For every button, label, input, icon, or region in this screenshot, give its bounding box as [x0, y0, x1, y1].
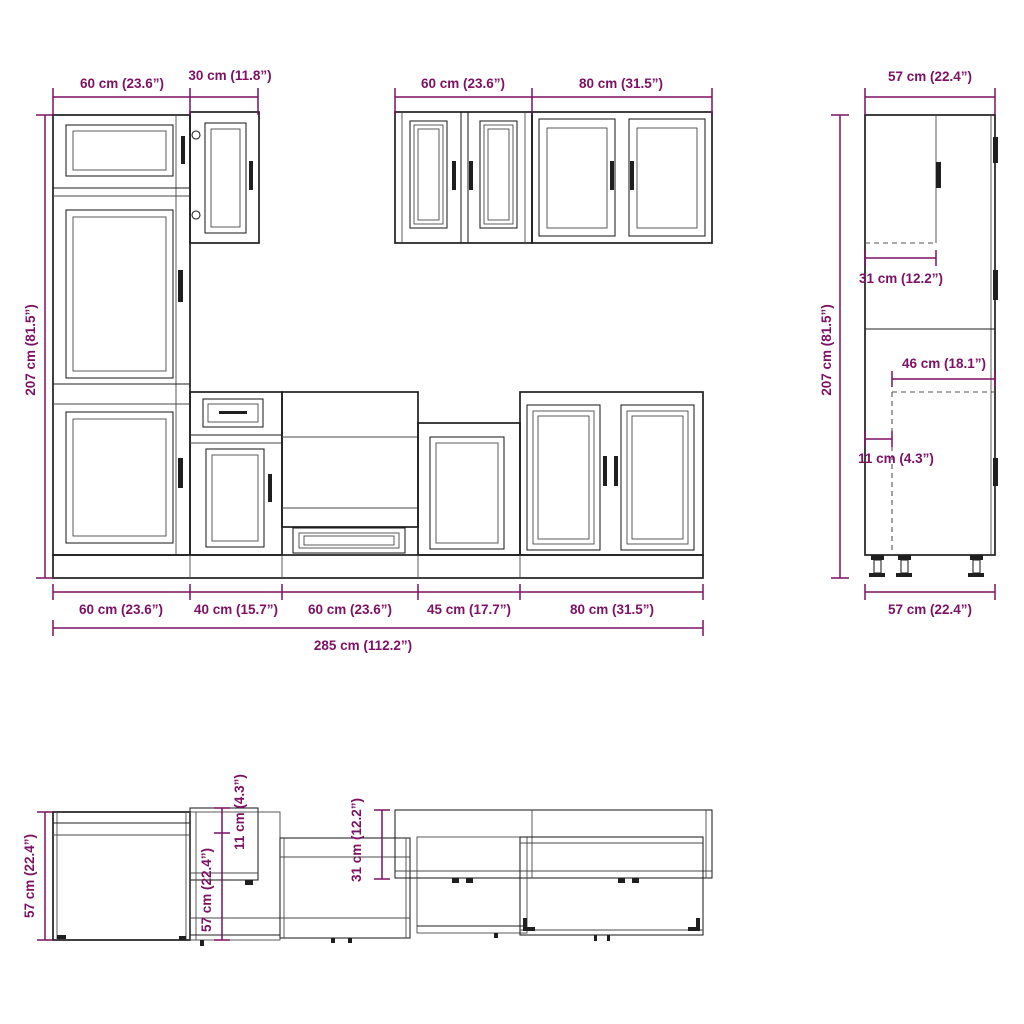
dim-side-depth-top: 57 cm (22.4”)	[888, 69, 972, 84]
base60-bottom-drawer	[293, 528, 405, 553]
tall-cabinet	[53, 115, 190, 555]
dim-wall-offset: 11 cm (4.3”)	[858, 451, 934, 466]
dim-plan-depth-left: 57 cm (22.4”)	[22, 834, 37, 918]
dim-line-total-width	[53, 620, 703, 636]
dim-carcass-depth: 46 cm (18.1”)	[902, 356, 986, 371]
tall-top-door-handle	[181, 136, 185, 164]
wall60-left-handle	[452, 161, 456, 190]
hinge-bottom	[192, 211, 200, 219]
dim-upper-cabinet-width: 30 cm (11.8”)	[188, 68, 271, 83]
side-handle-middle	[993, 270, 998, 300]
base45-door	[430, 437, 504, 549]
dim-height-side: 207 cm (81.5”)	[819, 304, 834, 396]
dim-line-side-depth-bottom	[865, 584, 995, 600]
dim-total-width: 285 cm (112.2”)	[314, 638, 412, 653]
wall60-right-door-panel	[480, 121, 517, 228]
tall-bottom-door	[66, 412, 173, 543]
front-elevation	[53, 112, 712, 578]
side-view	[865, 115, 998, 577]
wall60-right-handle	[469, 161, 473, 190]
dim-line-side-depth-top	[865, 88, 995, 115]
base-cabinet-80	[520, 392, 703, 555]
dim-plan-wall-depth: 31 cm (12.2”)	[349, 798, 364, 882]
plan-base-45	[417, 837, 527, 938]
plan-wall-60-80	[395, 810, 712, 883]
dim-wall-60: 60 cm (23.6”)	[421, 76, 505, 91]
dim-base-width-3: 60 cm (23.6”)	[308, 602, 392, 617]
dim-side-depth-bottom: 57 cm (22.4”)	[888, 602, 972, 617]
dim-line-height-left	[36, 115, 54, 578]
wall60-left-door-panel	[410, 121, 447, 228]
dim-plan-cabinet-depth: 57 cm (22.4”)	[199, 848, 214, 932]
kitchen-cabinet-dimension-diagram: 60 cm (23.6”) 30 cm (11.8”) 60 cm (23.6”…	[0, 0, 1024, 1024]
dim-base-width-5: 80 cm (31.5”)	[570, 602, 654, 617]
dim-height-left: 207 cm (81.5”)	[23, 304, 38, 396]
dim-line-wall-offset	[865, 431, 892, 447]
dim-base-width-2: 40 cm (15.7”)	[194, 602, 278, 617]
dimensions: 60 cm (23.6”) 30 cm (11.8”) 60 cm (23.6”…	[22, 68, 995, 940]
tall-top-door	[66, 125, 173, 176]
hinge-top	[192, 131, 200, 139]
base-cabinet-60-appliance	[282, 392, 418, 553]
wall80-left-handle	[610, 161, 614, 190]
base-cabinet-40	[190, 392, 282, 555]
wall-cabinet-30	[190, 112, 259, 243]
wall80-right-handle	[630, 161, 634, 190]
dim-base-width-4: 45 cm (17.7”)	[427, 602, 511, 617]
dim-line-plan-wall-depth	[374, 810, 390, 879]
wall80-left-door	[539, 119, 615, 236]
dim-line-carcass-depth	[892, 371, 995, 387]
dim-wall-80: 80 cm (31.5”)	[579, 76, 663, 91]
plan-base-80	[520, 837, 703, 941]
side-handle-top	[993, 137, 998, 163]
dim-line-top-left	[53, 88, 258, 115]
base80-left-handle	[603, 456, 607, 486]
dim-wall-depth: 31 cm (12.2”)	[859, 271, 943, 286]
plan-base-60-sink	[280, 838, 410, 943]
tall-middle-door-handle	[178, 270, 183, 302]
wall-cabinet-60	[395, 112, 532, 243]
dim-tall-unit-width: 60 cm (23.6”)	[80, 76, 164, 91]
dim-line-plan-offset-and-depth	[214, 808, 230, 940]
plinth	[53, 555, 703, 578]
dim-line-wall-depth	[865, 250, 936, 266]
side-wall-door-handle	[936, 162, 941, 188]
base40-door-handle	[268, 474, 272, 502]
base40-drawer-handle	[219, 411, 247, 414]
plan-hinge-mark	[245, 880, 253, 885]
wall30-door-handle	[249, 161, 253, 190]
dim-line-plan-depth-left	[37, 812, 53, 940]
dim-base-width-1: 60 cm (23.6”)	[79, 602, 163, 617]
side-handle-bottom	[993, 458, 998, 486]
adjustable-feet	[869, 555, 984, 577]
tall-middle-door	[66, 210, 173, 378]
diagram-canvas: 60 cm (23.6”) 30 cm (11.8”) 60 cm (23.6”…	[0, 0, 1024, 1024]
wall80-right-door	[629, 119, 705, 236]
wall-cabinet-80	[532, 112, 712, 243]
base40-door	[206, 449, 264, 547]
base-cabinet-45	[418, 423, 520, 555]
dim-plan-front-offset: 11 cm (4.3”)	[232, 774, 247, 850]
tall-bottom-door-handle	[178, 458, 183, 488]
dim-line-top-middle	[395, 88, 712, 115]
plan-base-60	[53, 812, 190, 940]
dim-line-base-widths	[53, 584, 703, 600]
base80-right-handle	[614, 456, 618, 486]
